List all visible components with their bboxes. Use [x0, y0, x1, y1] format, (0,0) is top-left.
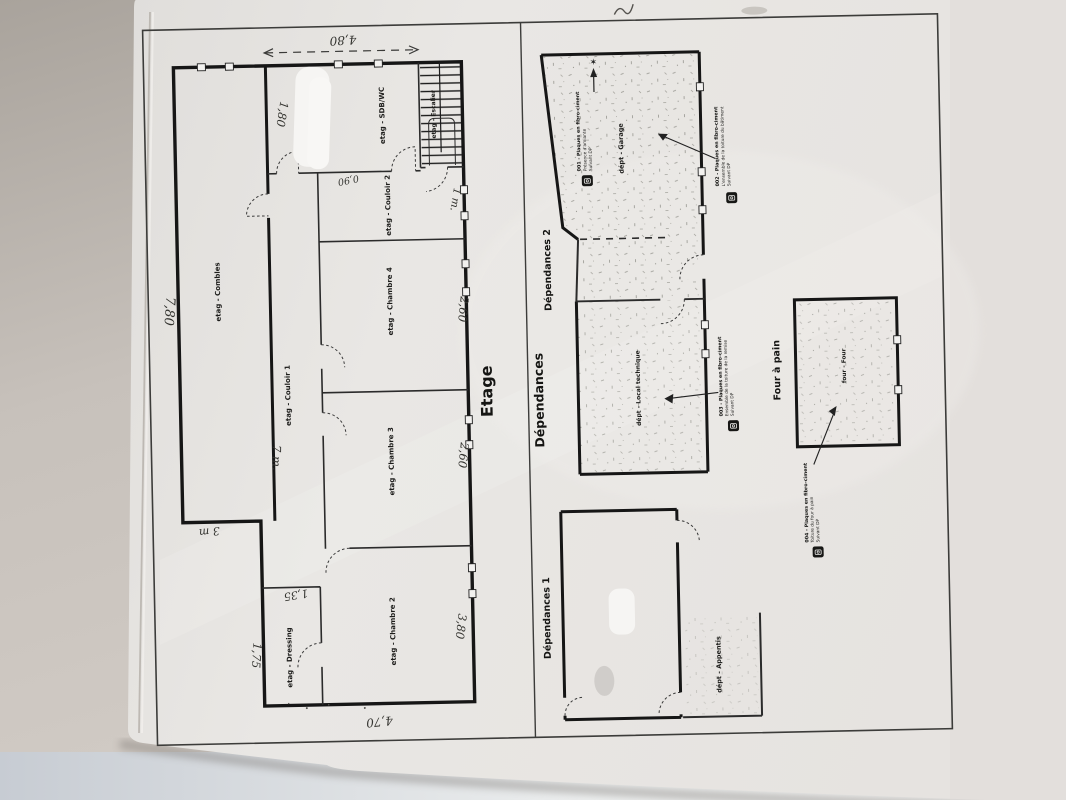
window-marker: [334, 61, 342, 68]
room-label-chambre3: etag - Chambre 3: [387, 427, 396, 496]
dim-3m: 3 m: [198, 524, 220, 539]
dim-4-80: 4,80: [329, 32, 358, 48]
paper-light: [460, 150, 980, 510]
annotation-marker-icon: [582, 175, 593, 186]
window-marker: [699, 206, 706, 214]
local-technique-speckle-fill: [577, 300, 707, 474]
whiteout-blob-etage: [293, 66, 332, 169]
room-label-combles: etag - Combles: [213, 262, 222, 321]
annotation-marker-icon: [813, 546, 824, 557]
annotation-marker-icon: [728, 420, 739, 431]
window-marker: [197, 64, 205, 71]
window-marker: [463, 288, 470, 296]
window-marker: [895, 386, 902, 394]
dim-7m: 7 m.: [269, 445, 283, 471]
annotation-line: Suivant DP: [729, 392, 735, 416]
paper-right-margin-shade: [950, 0, 1066, 800]
window-marker: [701, 321, 708, 329]
room-label-chambre4: etag - Chambre 4: [386, 267, 395, 336]
room-label-sdbwc: etag - SDB/WC: [378, 87, 387, 144]
dependances1-label: Dépendances 1: [541, 577, 554, 659]
room-label-escalier: etag - Escalier: [430, 90, 438, 139]
window-marker: [702, 350, 709, 358]
window-marker: [696, 83, 703, 91]
room-label-four: four - Four: [841, 348, 848, 383]
four-a-pain-label: Four à pain: [771, 340, 783, 401]
north-star-icon: ✶: [589, 57, 597, 67]
photo-of-floorplan: etag - Combles etag - Couloir 1 etag - C…: [0, 0, 1066, 800]
annotation-line: Suivant DP: [588, 147, 594, 171]
dim-2-60-b: 2,60: [455, 441, 472, 469]
room-label-garage: dépt - Garage: [617, 123, 626, 174]
window-marker: [374, 60, 382, 67]
whiteout-blob-dep1: [608, 588, 635, 635]
annotation-line: Suivant DP: [815, 518, 821, 542]
room-label-couloir2: etag - Couloir 2: [384, 175, 393, 236]
room-label-couloir1: etag - Couloir 1: [284, 365, 293, 426]
room-label-chambre2: etag - Chambre 2: [389, 597, 398, 666]
window-marker: [468, 564, 475, 572]
window-marker: [894, 336, 901, 344]
window-marker: [462, 260, 469, 268]
window-marker: [461, 212, 468, 220]
window-marker: [469, 590, 476, 598]
room-label-appentis: dépt - Appentis: [714, 636, 723, 693]
dependances2-label: Dépendances 2: [542, 229, 555, 311]
dim-2-60-a: 2,60: [455, 295, 472, 323]
window-marker: [225, 63, 233, 70]
dim-1-75: 1,75: [249, 642, 265, 668]
annotation-marker-icon: [726, 192, 737, 203]
window-marker: [698, 168, 705, 176]
floorplan-photo: etag - Combles etag - Couloir 1 etag - C…: [0, 0, 1066, 800]
annotation-line: Suivant DP: [726, 162, 732, 186]
dim-7-80: 7,80: [161, 296, 178, 326]
dependances-title: Dépendances: [530, 353, 547, 448]
window-marker: [465, 416, 472, 424]
etage-title: Etage: [477, 365, 497, 417]
room-label-dressing: etag - Dressing: [285, 627, 294, 688]
